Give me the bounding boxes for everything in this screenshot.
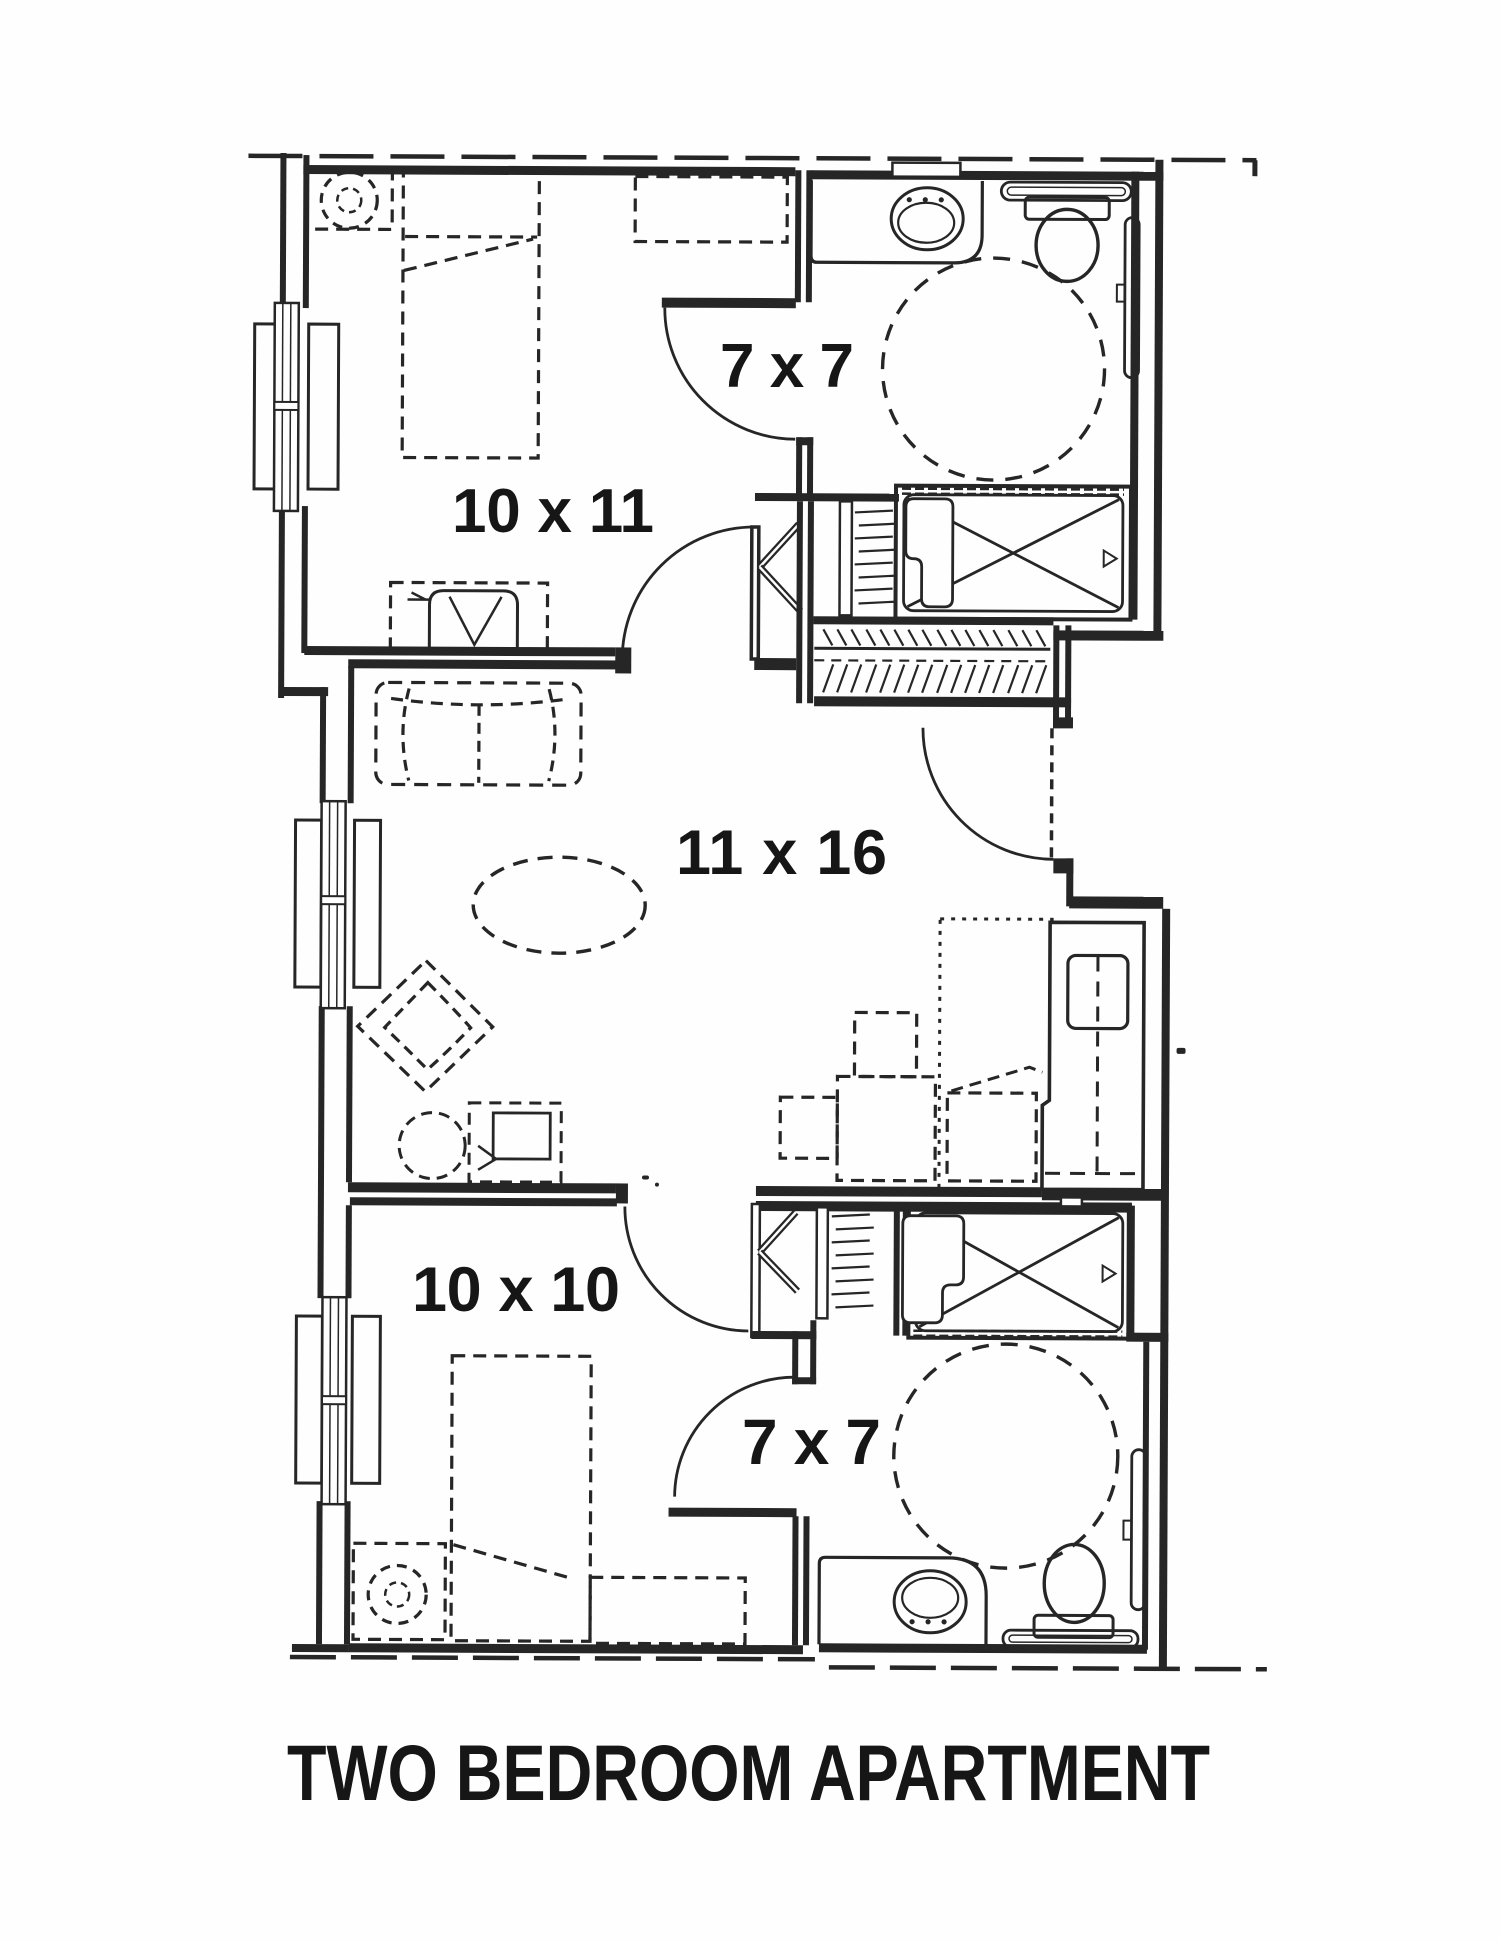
- svg-text:10 x 11: 10 x 11: [452, 477, 654, 546]
- svg-text:11 x 16: 11 x 16: [676, 818, 887, 888]
- svg-text:TWO BEDROOM APARTMENT: TWO BEDROOM APARTMENT: [287, 1728, 1210, 1817]
- svg-text:7 x 7: 7 x 7: [742, 1406, 881, 1478]
- svg-text:10 x 10: 10 x 10: [412, 1255, 620, 1325]
- svg-text:7 x 7: 7 x 7: [720, 332, 854, 401]
